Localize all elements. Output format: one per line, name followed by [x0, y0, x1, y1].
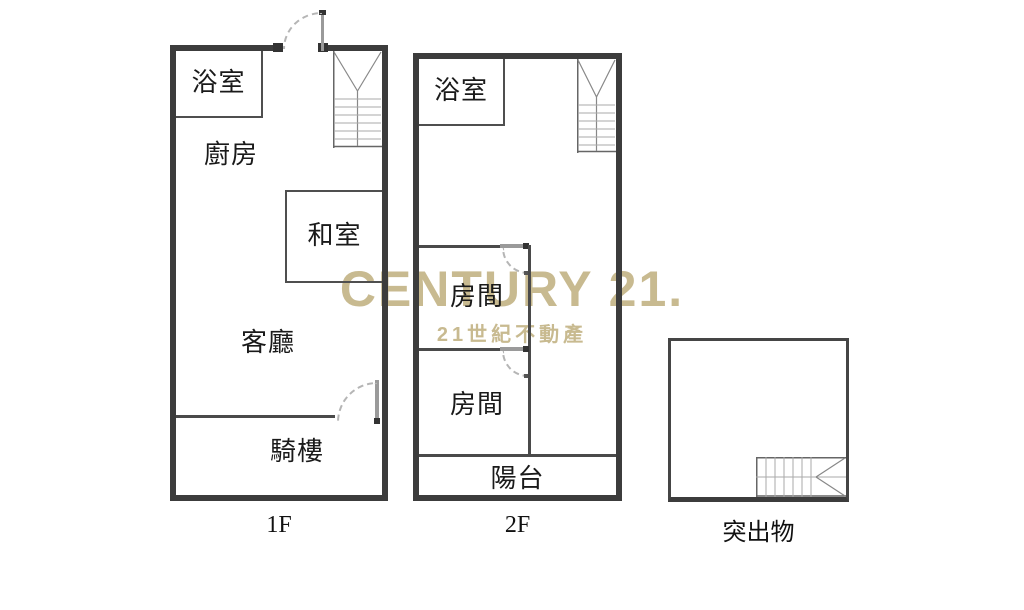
arcade-wall	[176, 415, 335, 418]
balcony-label: 陽台	[419, 465, 616, 494]
bathroom-1f: 浴室	[176, 51, 263, 118]
floorplan-sheet: CENTURY 21. 21世紀不動產 浴室 廚房 和室 客廳	[0, 0, 1024, 610]
floor-label-protrusion: 突出物	[668, 512, 849, 547]
door-stop-dot	[524, 374, 528, 378]
room-lower-wall	[419, 348, 500, 351]
wall-end-cap	[273, 43, 283, 52]
bathroom-2f-label: 浴室	[434, 77, 488, 106]
staircase-protrusion	[756, 457, 846, 497]
kitchen-label: 廚房	[176, 141, 286, 170]
entry-door-swing-arc	[283, 12, 322, 49]
floorplan-2f: 浴室 房間 房間 陽台	[413, 53, 622, 501]
arcade-label: 騎樓	[237, 438, 357, 467]
staircase-2f	[577, 59, 616, 153]
bathroom-1f-label: 浴室	[191, 69, 245, 98]
staircase-1f	[333, 51, 382, 148]
floor-label-1f: 1F	[170, 512, 388, 539]
room-upper-wall	[419, 245, 500, 248]
balcony-wall	[419, 454, 616, 457]
tatami-room-label: 和室	[307, 222, 361, 251]
floorplan-protrusion	[668, 338, 849, 502]
bathroom-2f: 浴室	[419, 59, 505, 126]
room-lower-label: 房間	[427, 391, 527, 420]
floor-label-2f: 2F	[413, 512, 622, 539]
living-room-label: 客廳	[208, 329, 328, 358]
room-upper-label: 房間	[427, 283, 527, 312]
tatami-room: 和室	[285, 190, 382, 283]
floorplan-1f: 浴室 廚房 和室 客廳 騎樓	[170, 45, 388, 501]
living-door-swing-arc	[337, 382, 377, 422]
